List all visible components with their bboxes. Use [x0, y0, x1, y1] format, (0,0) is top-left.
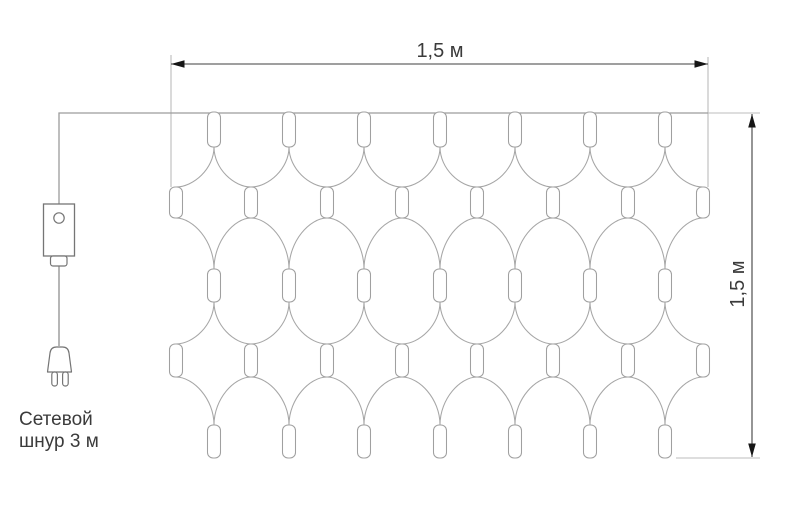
mesh-wire	[214, 218, 251, 269]
lamp	[208, 112, 221, 147]
mesh-wire	[553, 218, 590, 269]
lamp	[697, 344, 710, 377]
lamp	[622, 344, 635, 377]
mesh-wire	[364, 147, 402, 187]
lamp	[358, 425, 371, 458]
mesh-wire	[402, 377, 440, 425]
mesh-wire	[176, 302, 214, 344]
mesh-wire	[251, 218, 289, 269]
mesh-wire	[327, 147, 364, 187]
lamp	[396, 344, 409, 377]
net-lamps	[170, 112, 710, 458]
mesh-wire	[590, 302, 628, 344]
mesh-wire	[176, 377, 214, 425]
lamp	[396, 187, 409, 218]
lamp	[434, 112, 447, 147]
plug-prong-right	[63, 372, 69, 386]
lamp	[245, 344, 258, 377]
mesh-wire	[590, 147, 628, 187]
mesh-wire	[327, 302, 364, 344]
mesh-wire	[289, 302, 327, 344]
dimension-width: 1,5 м	[171, 40, 708, 68]
lamp	[659, 425, 672, 458]
dimension-height: 1,5 м	[727, 114, 756, 457]
lamp	[321, 187, 334, 218]
lamp	[471, 344, 484, 377]
mesh-wire	[590, 377, 628, 425]
power-plug-icon	[48, 347, 72, 386]
mesh-wire	[289, 147, 327, 187]
mesh-wire	[628, 147, 665, 187]
lamp	[659, 112, 672, 147]
cord-caption-line2: шнур 3 м	[19, 431, 99, 452]
lamp	[283, 112, 296, 147]
lamp	[509, 112, 522, 147]
mesh-wire	[327, 218, 364, 269]
mesh-wire	[176, 218, 214, 269]
lamp	[208, 425, 221, 458]
mesh-wire	[364, 302, 402, 344]
mesh-wire	[628, 218, 665, 269]
controller-button	[54, 213, 64, 223]
lamp	[547, 187, 560, 218]
mesh-wire	[515, 377, 553, 425]
mesh-wire	[214, 377, 251, 425]
arrow-down-icon	[748, 444, 756, 458]
mesh-wire	[477, 302, 515, 344]
mesh-wire	[515, 147, 553, 187]
mesh-wire	[628, 377, 665, 425]
mesh-wire	[327, 377, 364, 425]
mesh-wire	[402, 147, 440, 187]
lamp	[584, 425, 597, 458]
mesh-wire	[251, 377, 289, 425]
mesh-wire	[665, 302, 703, 344]
mesh-wire	[590, 218, 628, 269]
mesh-wire	[477, 218, 515, 269]
lamp	[622, 187, 635, 218]
mesh-wire	[364, 218, 402, 269]
controller-box-icon	[44, 204, 75, 266]
mesh-wire	[289, 218, 327, 269]
cord-caption: Сетевой шнур 3 м	[19, 409, 99, 452]
mesh-wire	[214, 302, 251, 344]
lamp	[170, 344, 183, 377]
mesh-wire	[214, 147, 251, 187]
lamp	[358, 112, 371, 147]
mesh-wire	[251, 302, 289, 344]
mesh-wire	[665, 218, 703, 269]
lamp	[283, 269, 296, 302]
mesh-wire	[364, 377, 402, 425]
mesh-wire	[553, 377, 590, 425]
arrow-left-icon	[171, 60, 185, 68]
lamp	[547, 344, 560, 377]
lamp	[358, 269, 371, 302]
lamp	[471, 187, 484, 218]
controller-connector	[51, 256, 68, 266]
mesh-wire	[402, 302, 440, 344]
mesh-wire	[440, 147, 477, 187]
arrow-right-icon	[695, 60, 709, 68]
plug-body	[48, 347, 72, 372]
arrow-up-icon	[748, 114, 756, 128]
height-dimension-label: 1,5 м	[727, 260, 749, 307]
lamp	[245, 187, 258, 218]
plug-prong-left	[52, 372, 58, 386]
lamp	[509, 425, 522, 458]
mesh-wire	[440, 377, 477, 425]
top-wire	[59, 113, 708, 204]
lamp	[584, 269, 597, 302]
lamp	[697, 187, 710, 218]
lamp	[659, 269, 672, 302]
lamp	[321, 344, 334, 377]
mesh-wire	[477, 377, 515, 425]
mesh-wire	[515, 218, 553, 269]
lamp	[584, 112, 597, 147]
net-light-diagram: 1,5 м 1,5 м Сетевой шнур 3 м	[0, 0, 793, 531]
mesh-wire	[553, 147, 590, 187]
lamp	[208, 269, 221, 302]
lamp	[283, 425, 296, 458]
mesh-wire	[477, 147, 515, 187]
mesh-wire	[251, 147, 289, 187]
cord-caption-line1: Сетевой	[19, 409, 93, 430]
mesh-wire	[176, 147, 214, 187]
diagram-canvas: 1,5 м 1,5 м Сетевой шнур 3 м	[0, 0, 793, 531]
mesh-wire	[628, 302, 665, 344]
mesh-wire	[440, 218, 477, 269]
mesh-wire	[665, 377, 703, 425]
controller-body	[44, 204, 75, 256]
mesh-wire	[515, 302, 553, 344]
mesh-wire	[553, 302, 590, 344]
mesh-wire	[440, 302, 477, 344]
lamp	[170, 187, 183, 218]
mesh-wire	[665, 147, 703, 187]
width-dimension-label: 1,5 м	[416, 40, 463, 62]
lamp	[434, 269, 447, 302]
mesh-wire	[402, 218, 440, 269]
lamp	[434, 425, 447, 458]
mesh-wire	[289, 377, 327, 425]
lamp	[509, 269, 522, 302]
